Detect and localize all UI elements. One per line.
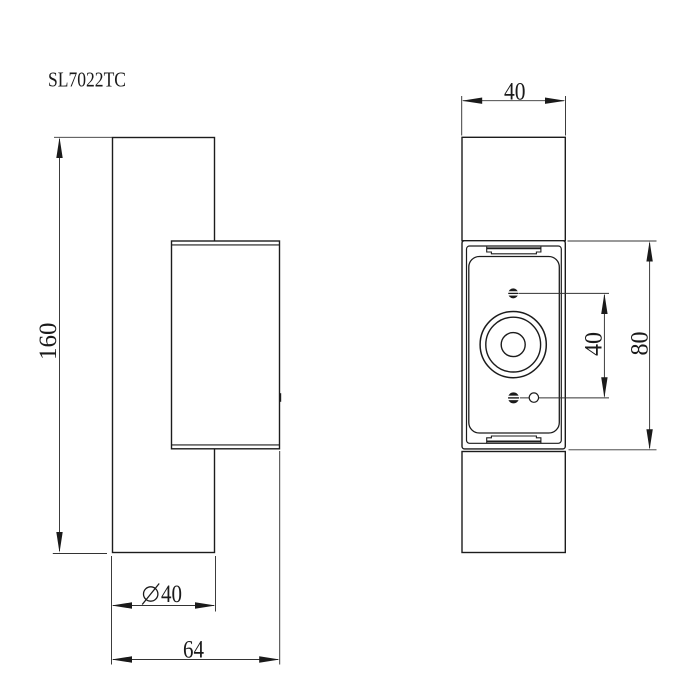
svg-text:160: 160 xyxy=(35,323,62,361)
svg-text:40: 40 xyxy=(161,581,182,608)
svg-text:80: 80 xyxy=(627,332,654,356)
svg-text:SL7022TC: SL7022TC xyxy=(48,68,126,92)
svg-text:40: 40 xyxy=(581,332,608,356)
svg-text:40: 40 xyxy=(504,78,526,105)
svg-text:64: 64 xyxy=(183,636,204,663)
